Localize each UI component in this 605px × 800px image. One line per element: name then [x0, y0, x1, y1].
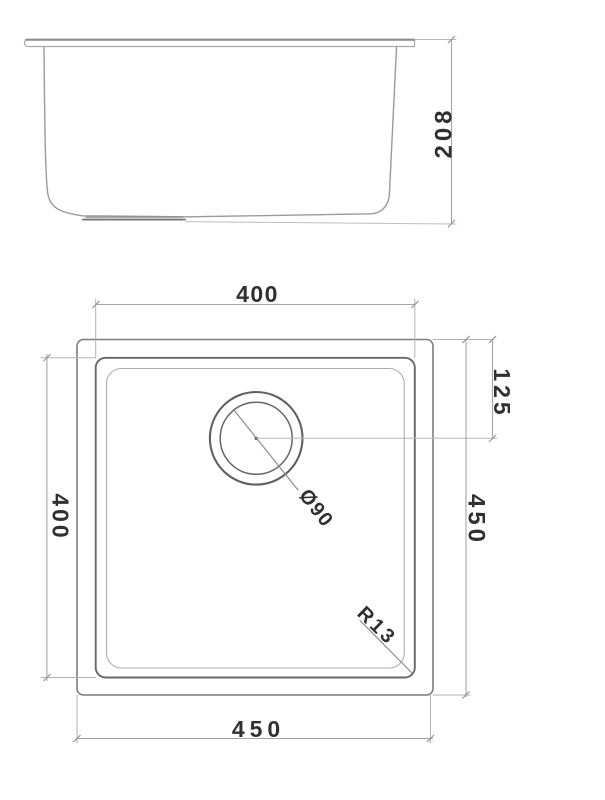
svg-text:450: 450: [463, 494, 490, 546]
svg-text:208: 208: [431, 106, 458, 158]
svg-text:400: 400: [236, 281, 279, 307]
svg-text:450: 450: [232, 716, 285, 742]
svg-text:Ø90: Ø90: [294, 485, 337, 532]
svg-text:125: 125: [489, 368, 515, 418]
svg-text:R13: R13: [353, 602, 401, 650]
svg-text:400: 400: [48, 493, 74, 540]
